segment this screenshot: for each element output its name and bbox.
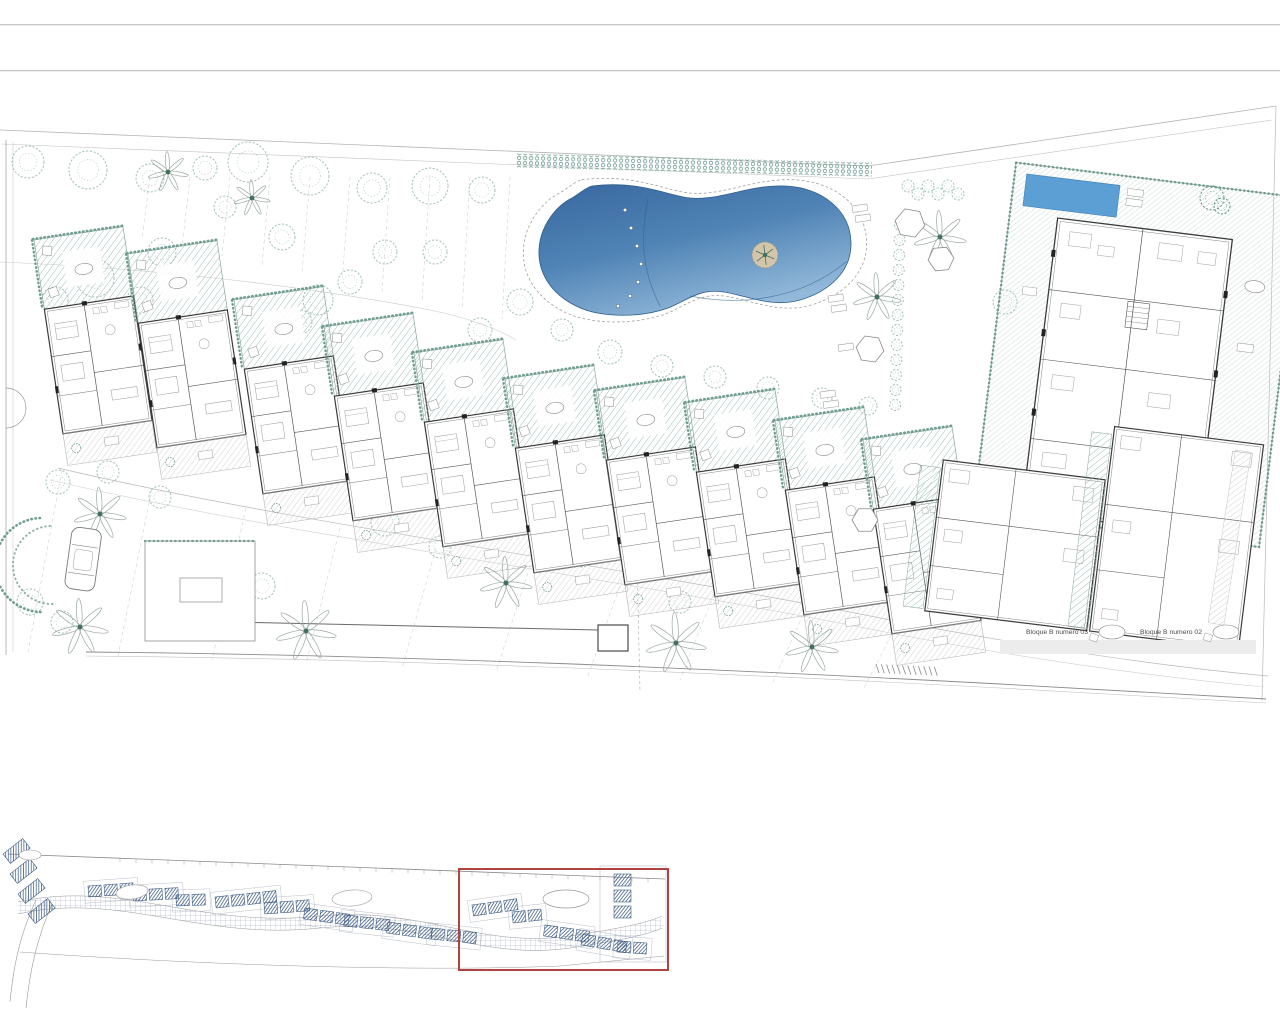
palm-tree-icon <box>165 152 170 173</box>
palm-tree-icon <box>276 628 308 642</box>
turning-bay <box>6 388 26 428</box>
sun-lounger <box>823 400 839 409</box>
keyplan-building <box>192 894 205 905</box>
palm-tree-icon <box>98 512 103 517</box>
door-jamb <box>1041 329 1046 336</box>
tree-icon <box>556 324 568 336</box>
keyplan-building <box>360 917 374 929</box>
keyplan-building <box>264 902 278 914</box>
tree-icon <box>214 196 236 218</box>
keyplan-building <box>614 906 631 918</box>
keyplan-building <box>303 908 317 921</box>
door-jamb <box>1031 408 1036 415</box>
tree-icon <box>942 180 954 192</box>
tree-icon <box>475 183 489 197</box>
keyplan-bottom-edge <box>20 952 664 968</box>
keyplan-building <box>617 941 631 953</box>
patio-table <box>394 523 409 533</box>
door-jamb <box>734 464 740 469</box>
pool-step-marker <box>628 294 632 298</box>
block-02-label: Bloque B numero 02 <box>1140 629 1202 636</box>
page: Bloque B numero 03 Bloque B numero 02 <box>0 0 1280 1024</box>
tree-icon <box>895 282 901 288</box>
tree-icon <box>709 371 721 383</box>
patio-table <box>575 575 590 585</box>
door-jamb <box>1223 291 1228 298</box>
tree-icon <box>149 486 171 508</box>
tree-icon <box>255 579 269 593</box>
patio-table <box>756 599 771 609</box>
stair-tick <box>903 665 906 674</box>
utility-structure <box>598 625 628 651</box>
garden-bench <box>1237 343 1254 353</box>
terrace-table <box>1213 625 1239 639</box>
tree-icon <box>193 156 217 180</box>
tree-icon <box>915 191 922 198</box>
stair-tick <box>881 664 884 673</box>
door-jamb <box>372 388 378 393</box>
keyplan-building <box>344 915 358 927</box>
tree-icon <box>895 312 901 318</box>
tree-icon <box>469 177 495 203</box>
tree-icon <box>952 188 964 200</box>
keyplan-building <box>280 901 294 913</box>
lounge-chair <box>604 397 614 407</box>
palm-tree-icon <box>799 646 814 673</box>
hedge-arc <box>0 518 44 612</box>
palm-tree-icon <box>646 640 678 654</box>
tree-icon <box>905 183 912 190</box>
keyplan-building <box>88 885 102 897</box>
tree-icon <box>935 191 942 198</box>
tree-icon <box>894 342 900 348</box>
palm-tree-icon <box>674 641 679 646</box>
lounge-chair <box>694 409 704 419</box>
tree-icon <box>300 166 321 187</box>
tree-icon <box>892 402 898 408</box>
pool-step-marker <box>636 280 640 284</box>
tree-icon <box>893 265 904 276</box>
lounge-chair <box>871 446 881 456</box>
tree-icon <box>364 180 381 197</box>
keyplan-pool <box>543 890 589 908</box>
patio-table <box>933 636 948 646</box>
plot-line <box>182 177 190 247</box>
palm-tree-icon <box>77 625 96 653</box>
tree-icon <box>893 295 904 306</box>
keyplan-building <box>10 859 37 884</box>
tree-icon <box>357 173 387 203</box>
stair-tick <box>924 666 927 675</box>
patio-table <box>104 436 119 446</box>
palm-tree-icon <box>301 600 309 631</box>
stair-tick <box>897 665 900 674</box>
stair-tick <box>934 667 937 676</box>
tree-icon <box>891 340 902 351</box>
pool-step-marker <box>635 244 639 248</box>
keyplan-building <box>512 911 526 923</box>
tree-icon <box>102 466 114 478</box>
palm-tree-icon <box>78 625 83 630</box>
tree-icon <box>78 160 99 181</box>
plot-line <box>306 528 340 664</box>
door-jamb <box>553 440 559 445</box>
site-plan-drawing: Bloque B numero 03 Bloque B numero 02 <box>0 0 1280 1024</box>
palm-tree-icon <box>853 295 878 306</box>
lounge-chair <box>783 427 793 437</box>
stair-tick <box>876 664 879 673</box>
pool-step-marker <box>616 304 620 308</box>
palm-tree-icon <box>810 645 815 650</box>
tree-icon <box>275 230 289 244</box>
tree-icon <box>473 323 486 336</box>
tree-icon <box>513 295 527 309</box>
palm-tree-icon <box>74 511 101 523</box>
keyplan-building <box>231 894 245 906</box>
tree-icon <box>423 240 447 264</box>
sun-lounger <box>820 390 836 399</box>
palm-tree-icon <box>914 234 941 246</box>
garden-bench <box>1022 286 1037 296</box>
main-site-plan: Bloque B numero 03 Bloque B numero 02 <box>0 106 1280 703</box>
keyplan-pool <box>331 889 372 908</box>
palm-tree-icon <box>786 644 813 656</box>
tree-icon <box>428 245 441 258</box>
tree-icon <box>902 180 914 192</box>
block-03-label: Bloque B numero 03 <box>1026 629 1088 636</box>
tree-icon <box>269 224 295 250</box>
keyplan-building <box>431 928 445 940</box>
hedge-arc <box>13 526 54 604</box>
tree-icon <box>598 340 622 364</box>
palm-tree-icon <box>873 272 879 297</box>
lounge-chair <box>42 246 52 256</box>
plot-line <box>402 548 436 668</box>
patio-table <box>845 617 860 627</box>
keyplan-building <box>176 895 189 906</box>
door-jamb <box>82 301 88 306</box>
lounge-chair <box>242 306 252 316</box>
keyplan-building <box>472 903 486 916</box>
palm-tree-icon <box>249 180 254 199</box>
tree-icon <box>603 345 616 358</box>
palm-tree-icon <box>66 625 82 654</box>
tree-icon <box>651 355 673 377</box>
patio-table <box>304 496 319 506</box>
tree-icon <box>198 161 211 174</box>
palm-tree-icon <box>76 598 83 627</box>
keyplan-building <box>319 910 333 923</box>
tree-icon <box>892 325 903 336</box>
sun-lounger <box>831 304 847 313</box>
pool-step-marker <box>623 208 627 212</box>
plot-line <box>302 177 310 274</box>
tree-icon <box>925 183 932 190</box>
keyplan-building <box>215 896 229 908</box>
tree-icon <box>932 188 944 200</box>
patio-table <box>198 450 213 460</box>
site-bottom-boundary <box>86 652 1266 699</box>
tree-icon <box>893 280 904 291</box>
palm-tree-icon <box>303 629 323 659</box>
tree-icon <box>922 180 934 192</box>
keyplan-building <box>528 909 542 921</box>
tree-icon <box>955 191 962 198</box>
terrace-table <box>1099 625 1125 639</box>
tree-icon <box>507 289 533 315</box>
door-jamb <box>911 501 917 506</box>
plot-line <box>28 470 62 652</box>
tree-icon <box>19 153 37 171</box>
patio-table <box>666 587 681 597</box>
site-bottom-boundary-inner <box>86 656 1266 703</box>
tree-icon <box>890 400 901 411</box>
building-walls <box>138 310 246 448</box>
sun-lounger <box>828 294 844 303</box>
stair-tick <box>929 667 932 676</box>
tree-icon <box>656 360 668 372</box>
tree-icon <box>912 188 924 200</box>
tree-icon <box>291 157 329 195</box>
tree-icon <box>97 461 119 483</box>
keyplan-building <box>614 874 631 886</box>
tree-icon <box>12 146 44 178</box>
keyplan-building <box>149 888 163 900</box>
palm-tree-icon <box>875 295 880 300</box>
tree-icon <box>373 240 397 264</box>
palm-tree-icon <box>166 170 171 175</box>
door-jamb <box>1213 370 1218 377</box>
door-jamb <box>1051 250 1056 257</box>
keyplan-building <box>402 924 416 937</box>
plot-line <box>142 177 150 238</box>
swimming-pool <box>539 185 851 316</box>
sun-lounger <box>838 343 854 352</box>
tree-icon <box>893 372 899 378</box>
keyplan-building <box>488 901 502 914</box>
patio-table <box>484 549 499 559</box>
door-jamb <box>282 361 288 366</box>
tree-icon <box>892 310 903 321</box>
tree-icon <box>893 357 899 363</box>
keyplan-building <box>504 899 518 912</box>
tree-icon <box>893 387 899 393</box>
lounge-chair <box>332 333 342 343</box>
door-jamb <box>644 452 650 457</box>
tree-icon <box>894 235 905 246</box>
gazebo <box>895 209 925 237</box>
palm-tree-icon <box>876 295 901 304</box>
palm-tree-icon <box>250 196 255 201</box>
keyplan-building <box>104 884 118 896</box>
tree-icon <box>896 267 902 273</box>
tree-icon <box>704 366 726 388</box>
tree-icon <box>51 611 73 633</box>
palm-tree-icon <box>304 629 309 634</box>
tree-icon <box>551 319 573 341</box>
hedge-band <box>516 153 872 176</box>
tree-icon <box>897 237 903 243</box>
tree-icon <box>891 370 902 381</box>
keyplan-building <box>597 937 612 950</box>
tree-icon <box>412 168 448 204</box>
keyplan-building <box>543 925 557 938</box>
keyplan-building <box>581 934 596 947</box>
tree-icon <box>891 355 902 366</box>
tree-icon <box>23 595 37 609</box>
keyplan-building <box>614 890 631 902</box>
door-jamb <box>176 315 182 320</box>
lounge-chair <box>136 260 146 270</box>
island-trunk <box>763 253 767 257</box>
palm-tree-icon <box>671 612 679 643</box>
tree-icon <box>228 142 268 182</box>
palm-tree-icon <box>504 581 509 586</box>
sun-lounger <box>855 214 871 223</box>
plot-line <box>502 177 510 319</box>
tree-icon <box>154 491 166 503</box>
lower-deck <box>1000 640 1256 654</box>
sun-lounger <box>852 204 868 213</box>
palm-tree-icon <box>938 235 943 240</box>
keyplan-building <box>263 891 277 903</box>
tree-icon <box>343 275 356 288</box>
plot-line <box>382 177 390 292</box>
keyplan-boundary <box>8 854 665 879</box>
stair-tick <box>918 666 921 675</box>
stair-tick <box>887 665 890 674</box>
keyplan-building <box>463 931 477 943</box>
keyplan-building <box>633 942 647 954</box>
keyplan-building <box>559 927 573 940</box>
pool-step-marker <box>629 226 633 230</box>
parked-car <box>64 526 102 592</box>
keyplan-building <box>418 926 432 939</box>
plot-line <box>222 177 230 256</box>
tree-icon <box>896 252 902 258</box>
lounge-chair <box>422 359 432 369</box>
tree-icon <box>894 327 900 333</box>
pool-step-marker <box>639 262 643 266</box>
stair-tick <box>913 666 916 675</box>
door-jamb <box>823 482 829 487</box>
lounge-chair <box>513 385 523 395</box>
palm-tree-icon <box>493 582 508 609</box>
keyplan-pool <box>19 850 41 860</box>
tree-icon <box>219 201 231 213</box>
plot-line <box>462 177 470 310</box>
tree-icon <box>338 270 362 294</box>
service-plot <box>145 541 255 641</box>
tree-icon <box>69 151 107 189</box>
retaining-wall <box>230 622 598 630</box>
palm-tree-icon <box>480 580 507 592</box>
door-jamb <box>462 414 468 419</box>
stair-tick <box>892 665 895 674</box>
tree-icon <box>890 385 901 396</box>
car-body <box>64 526 102 592</box>
stair-tick <box>908 666 911 675</box>
plot-line <box>342 177 350 283</box>
overview-key-plan <box>3 839 668 1008</box>
tree-icon <box>894 250 905 261</box>
tree-icon <box>945 183 952 190</box>
palm-tree-icon <box>936 210 943 237</box>
keyplan-building <box>386 922 400 935</box>
gazebo <box>856 336 884 362</box>
keyplan-building <box>247 892 261 904</box>
tree-icon <box>468 318 492 342</box>
palm-tree-icon <box>673 641 693 671</box>
